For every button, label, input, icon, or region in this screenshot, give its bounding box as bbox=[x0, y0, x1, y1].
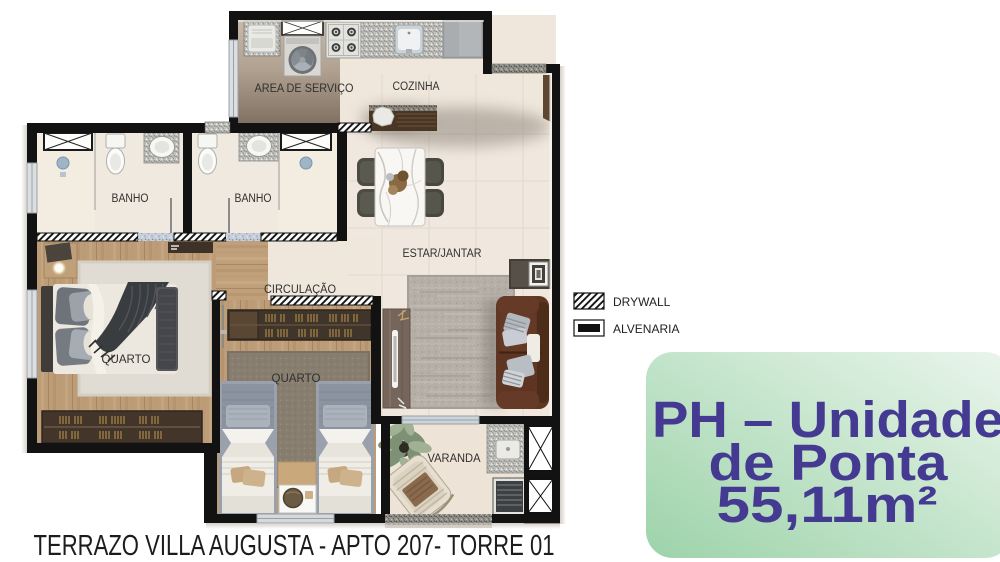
svg-text:ALVENARIA: ALVENARIA bbox=[613, 322, 679, 336]
svg-text:QUARTO: QUARTO bbox=[272, 373, 321, 385]
svg-text:ESTAR/JANTAR: ESTAR/JANTAR bbox=[403, 248, 482, 260]
svg-text:AREA DE SERVIÇO: AREA DE SERVIÇO bbox=[255, 83, 354, 95]
svg-text:55,11m²: 55,11m² bbox=[717, 476, 938, 533]
svg-text:BANHO: BANHO bbox=[112, 193, 149, 205]
svg-text:TERRAZO VILLA AUGUSTA - APTO 2: TERRAZO VILLA AUGUSTA - APTO 207- TORRE … bbox=[34, 530, 555, 562]
svg-text:DRYWALL: DRYWALL bbox=[613, 295, 671, 309]
svg-text:CIRCULAÇÃO: CIRCULAÇÃO bbox=[264, 283, 336, 296]
svg-text:BANHO: BANHO bbox=[235, 193, 272, 205]
svg-text:VARANDA: VARANDA bbox=[428, 453, 481, 465]
svg-text:QUARTO: QUARTO bbox=[102, 354, 151, 366]
svg-text:COZINHA: COZINHA bbox=[393, 81, 440, 93]
